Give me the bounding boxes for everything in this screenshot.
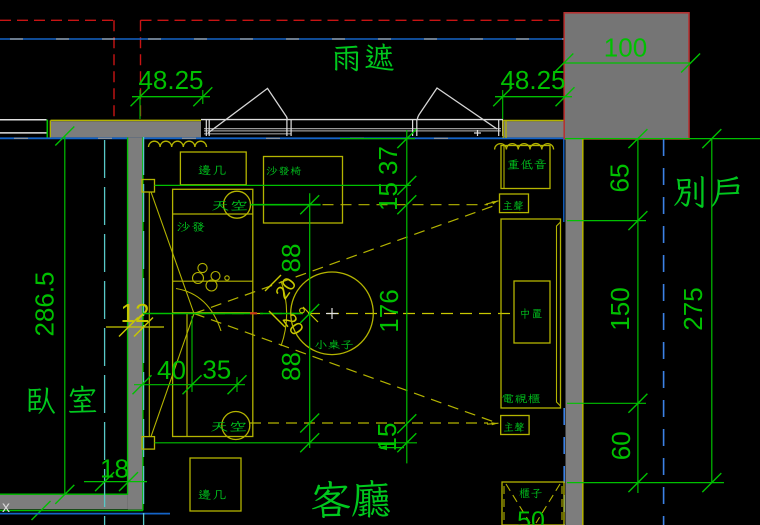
svg-text:48.25: 48.25 — [500, 65, 565, 95]
svg-text:88: 88 — [276, 244, 306, 273]
svg-text:65: 65 — [605, 164, 635, 193]
svg-text:40: 40 — [157, 355, 186, 385]
svg-text:x: x — [2, 499, 10, 516]
svg-text:15: 15 — [372, 423, 402, 452]
svg-text:100: 100 — [604, 33, 647, 63]
svg-text:60: 60 — [606, 431, 636, 460]
svg-text:50: 50 — [517, 507, 545, 525]
svg-text:88: 88 — [276, 352, 306, 381]
svg-text:15: 15 — [373, 182, 403, 211]
svg-text:286.5: 286.5 — [30, 271, 60, 336]
svg-text:37: 37 — [373, 146, 403, 175]
svg-text:150: 150 — [605, 287, 635, 330]
svg-text:35: 35 — [202, 355, 231, 385]
svg-text:48.25: 48.25 — [138, 65, 203, 95]
svg-text:176: 176 — [374, 289, 404, 332]
svg-text:275: 275 — [678, 287, 708, 330]
svg-text:18: 18 — [100, 454, 129, 484]
